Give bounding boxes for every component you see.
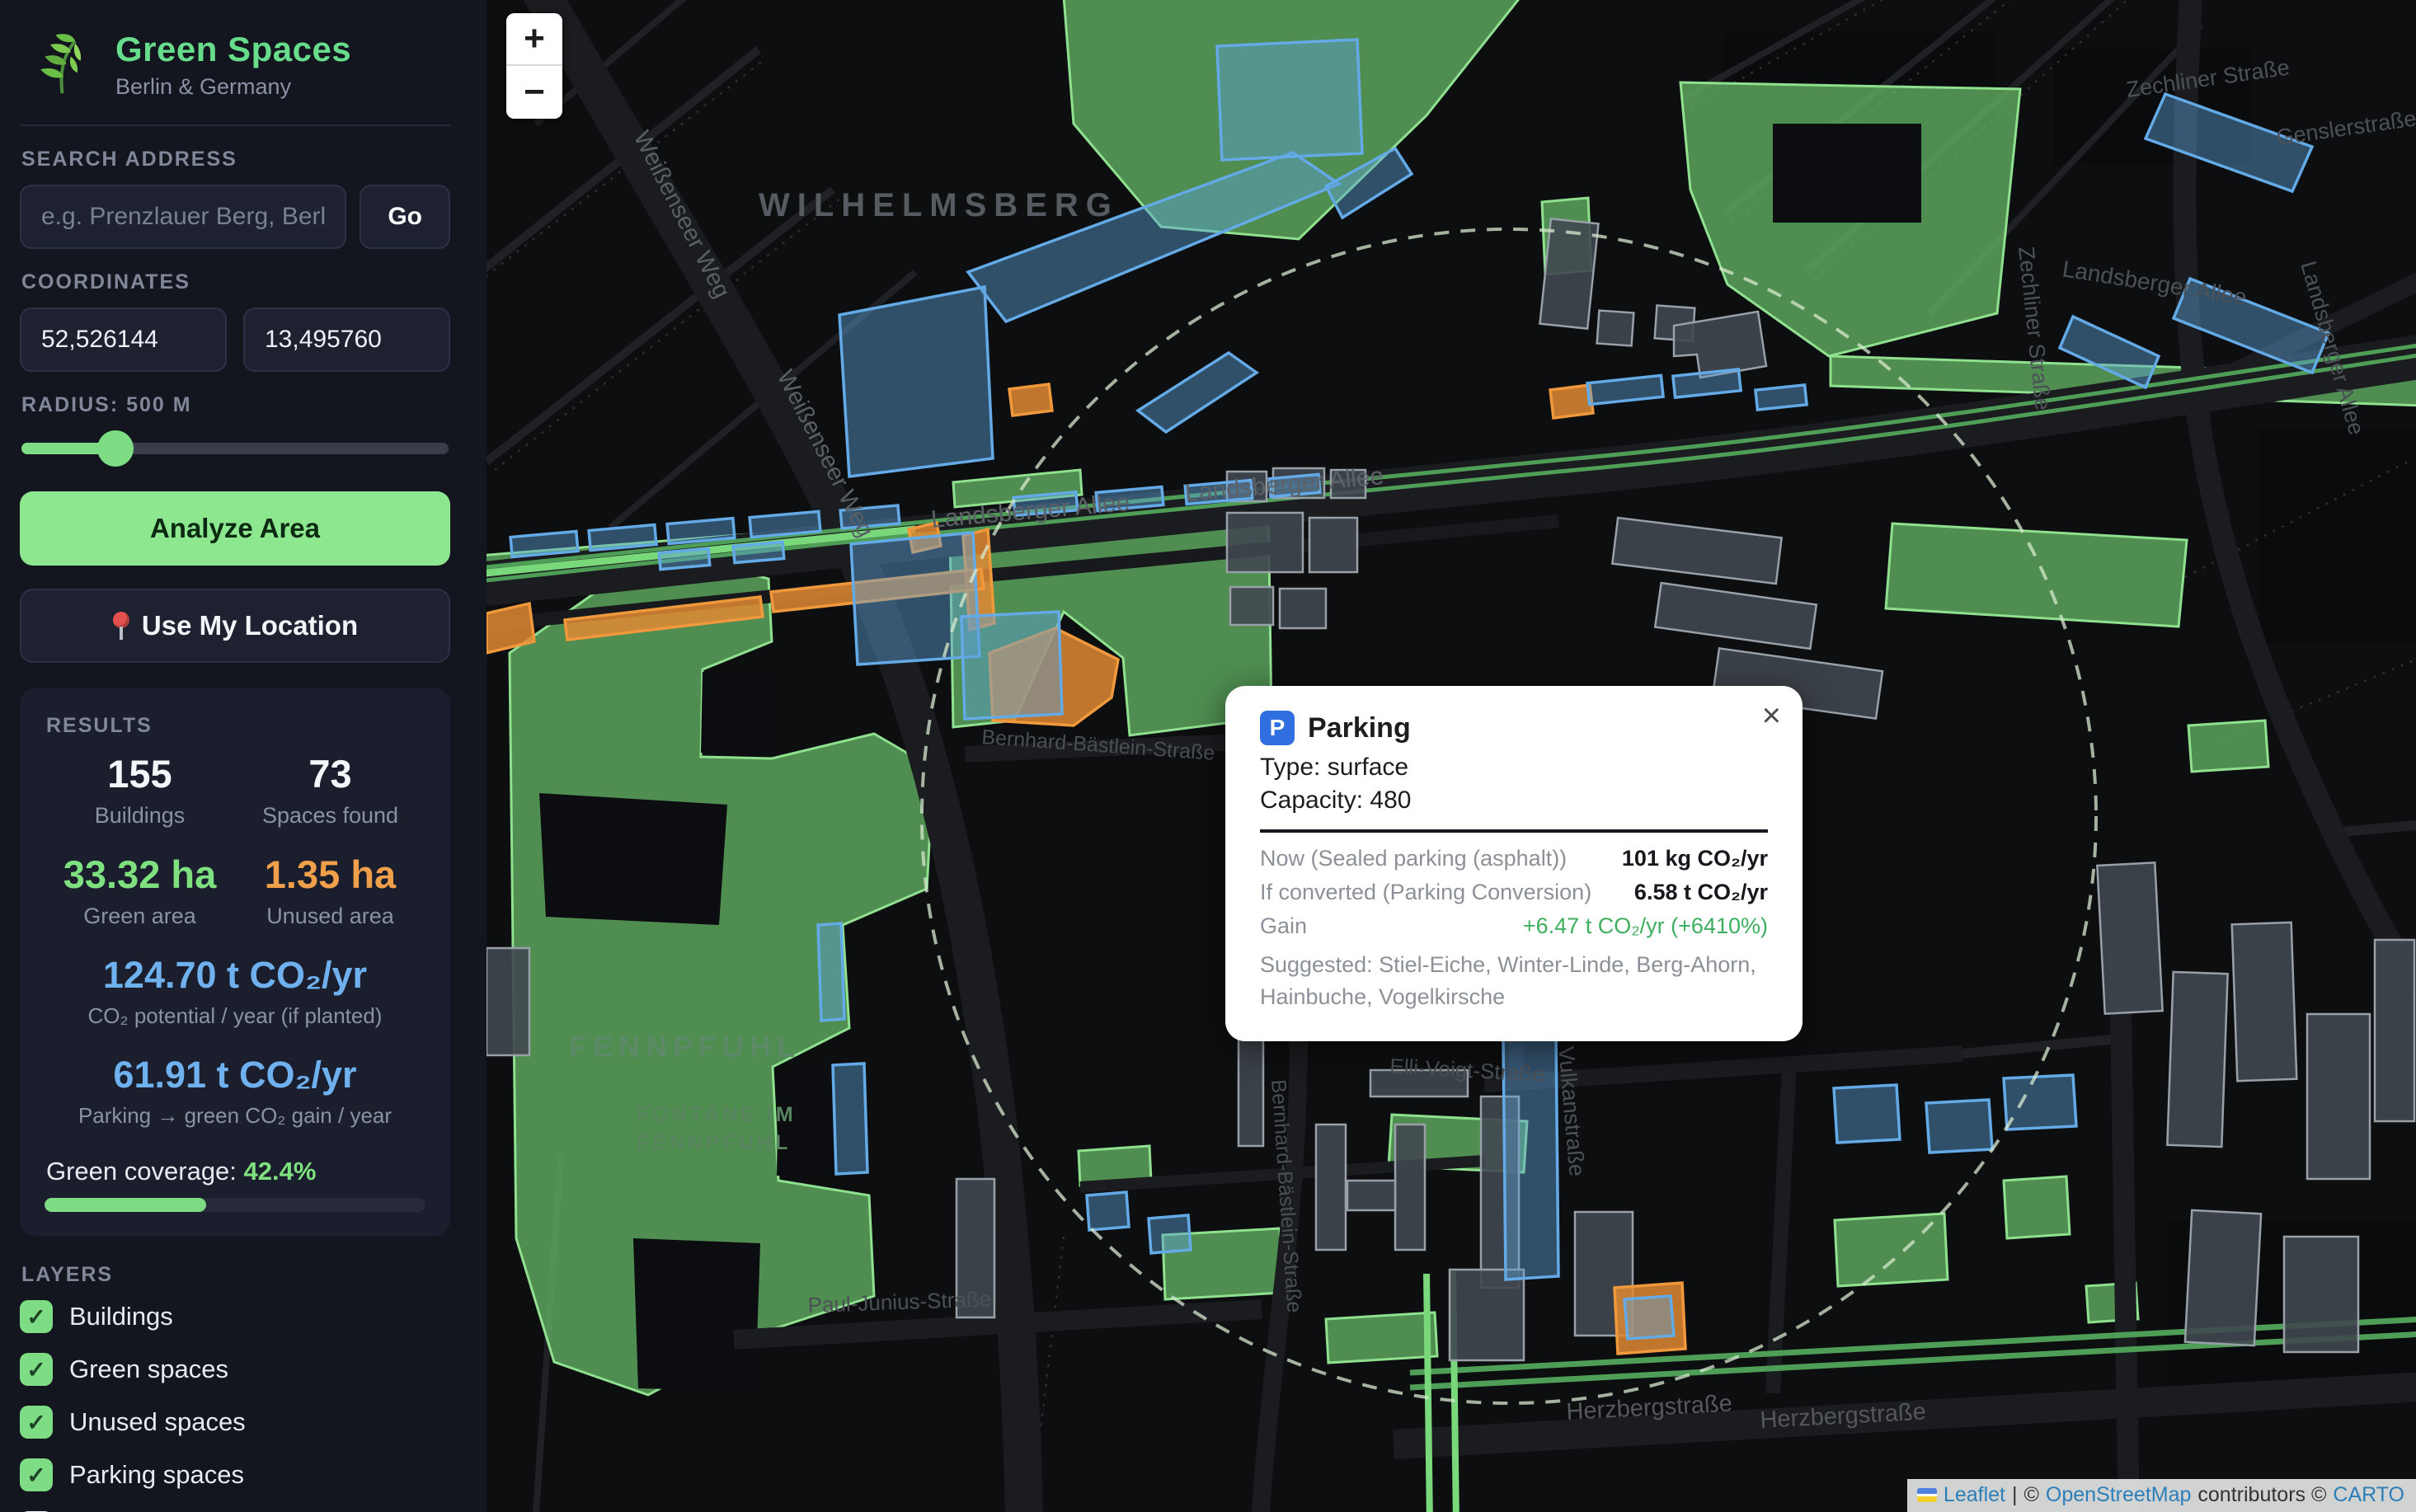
building-polygon[interactable] xyxy=(1230,587,1273,625)
divider xyxy=(20,124,450,126)
leaf-logo-icon xyxy=(30,31,99,100)
building-polygon[interactable] xyxy=(2167,972,2227,1147)
unused-area-label: Unused area xyxy=(235,904,425,929)
checkbox-icon[interactable] xyxy=(20,1458,53,1491)
app-root: Green Spaces Berlin & Germany SEARCH ADD… xyxy=(0,0,2416,1512)
radius-label: RADIUS: 500 M xyxy=(21,393,450,417)
district-label: FENNPFUHL xyxy=(637,1131,791,1154)
coverage-value: 42.4% xyxy=(244,1157,317,1186)
radius-slider[interactable] xyxy=(21,430,449,467)
sidebar: Green Spaces Berlin & Germany SEARCH ADD… xyxy=(0,0,486,1512)
building-polygon[interactable] xyxy=(1347,1181,1395,1210)
building-polygon[interactable] xyxy=(486,948,529,1055)
parking-space-polygon[interactable] xyxy=(818,923,844,1021)
building-polygon[interactable] xyxy=(2185,1210,2261,1345)
parking-space-polygon[interactable] xyxy=(1087,1192,1129,1230)
coordinates-section-label: COORDINATES xyxy=(21,270,450,294)
popup-suggested-trees: Suggested: Stiel-Eiche, Winter-Linde, Be… xyxy=(1260,949,1768,1013)
zoom-out-button[interactable]: − xyxy=(506,66,562,119)
stat-buildings: 155 Buildings xyxy=(45,751,235,829)
zoom-control: + − xyxy=(506,13,562,119)
analyze-area-button[interactable]: Analyze Area xyxy=(20,491,450,566)
layers-section-label: LAYERS xyxy=(21,1263,450,1287)
street-label: Weißenseer Weg xyxy=(628,127,736,303)
layer-label: Parking spaces xyxy=(69,1460,244,1490)
parking-icon: P xyxy=(1260,711,1295,745)
green-space-polygon[interactable] xyxy=(2188,721,2268,772)
leaflet-link[interactable]: Leaflet xyxy=(1944,1483,2005,1507)
district-label: FENNPFUHL xyxy=(569,1030,801,1064)
building-polygon[interactable] xyxy=(1597,311,1634,346)
building-polygon[interactable] xyxy=(2232,923,2297,1081)
parking-space-polygon[interactable] xyxy=(1149,1215,1191,1253)
stat-green-area: 33.32 ha Green area xyxy=(45,852,235,929)
app-title: Green Spaces xyxy=(115,30,351,69)
building-polygon[interactable] xyxy=(2284,1237,2358,1352)
coverage-bar-fill xyxy=(45,1198,206,1212)
search-section-label: SEARCH ADDRESS xyxy=(21,148,450,171)
coverage-label: Green coverage: xyxy=(46,1157,237,1186)
checkbox-icon[interactable] xyxy=(20,1300,53,1333)
layer-label: Buildings xyxy=(69,1302,173,1331)
map-canvas[interactable]: WILHELMSBERGFENNPFUHLFONTANE IMFENNPFUHL… xyxy=(486,0,2416,1512)
slider-thumb[interactable] xyxy=(97,430,134,467)
buildings-label: Buildings xyxy=(45,803,235,829)
building-polygon[interactable] xyxy=(1309,518,1357,572)
parking-space-polygon[interactable] xyxy=(2004,1075,2076,1129)
green-area-label: Green area xyxy=(45,904,235,929)
leaflet-flag-icon xyxy=(1917,1488,1937,1502)
street-label: Genslerstraße xyxy=(2275,106,2416,150)
results-label: RESULTS xyxy=(46,714,425,738)
popup-row-now: Now (Sealed parking (asphalt)) 101 kg CO… xyxy=(1260,846,1768,871)
building-polygon[interactable] xyxy=(1612,518,1781,584)
checkbox-icon[interactable] xyxy=(20,1406,53,1439)
longitude-input[interactable] xyxy=(243,308,450,372)
parking-space-polygon[interactable] xyxy=(851,533,980,664)
parking-space-polygon[interactable] xyxy=(1217,40,1362,160)
close-icon[interactable]: × xyxy=(1762,699,1781,732)
street-label: Vulkanstraße xyxy=(1553,1045,1590,1177)
map-attribution: Leaflet | © OpenStreetMap contributors ©… xyxy=(1907,1479,2416,1512)
stat-unused-area: 1.35 ha Unused area xyxy=(235,852,425,929)
green-area-value: 33.32 ha xyxy=(45,852,235,897)
results-card: RESULTS 155 Buildings 73 Spaces found 33… xyxy=(20,688,450,1237)
street-label: Landsberger Allee xyxy=(2061,256,2249,310)
co2-potential-caption: CO₂ potential / year (if planted) xyxy=(45,1003,425,1029)
unused-space-polygon[interactable] xyxy=(1009,384,1052,416)
popup-title: Parking xyxy=(1308,712,1411,744)
stats-grid: 155 Buildings 73 Spaces found 33.32 ha G… xyxy=(45,751,425,929)
search-row: Go xyxy=(20,185,450,249)
use-my-location-button[interactable]: Use My Location xyxy=(20,589,450,663)
parking-space-polygon[interactable] xyxy=(833,1064,867,1174)
building-polygon[interactable] xyxy=(1316,1125,1346,1250)
layer-toggle-buildings[interactable]: Buildings xyxy=(20,1300,450,1333)
parking-popup: × P Parking Type: surface Capacity: 480 … xyxy=(1225,686,1803,1041)
search-input[interactable] xyxy=(20,185,346,249)
co2-potential-value: 124.70 t CO₂/yr xyxy=(45,954,425,997)
building-polygon[interactable] xyxy=(2097,862,2162,1013)
layer-label: Unused spaces xyxy=(69,1407,246,1437)
layer-toggle-unused-spaces[interactable]: Unused spaces xyxy=(20,1406,450,1439)
co2-potential-block: 124.70 t CO₂/yr CO₂ potential / year (if… xyxy=(45,954,425,1029)
popup-type-line: Type: surface xyxy=(1260,754,1768,782)
layer-label: Green spaces xyxy=(69,1355,228,1384)
coordinates-row xyxy=(20,308,450,372)
district-label: WILHELMSBERG xyxy=(759,187,1119,223)
parking-space-polygon[interactable] xyxy=(1624,1296,1674,1339)
building-polygon[interactable] xyxy=(1655,583,1817,649)
unused-area-value: 1.35 ha xyxy=(235,852,425,897)
popup-divider xyxy=(1260,829,1768,833)
parking-gain-caption: Parking → green CO₂ gain / year xyxy=(45,1103,425,1129)
openstreetmap-link[interactable]: OpenStreetMap xyxy=(2046,1483,2192,1507)
buildings-value: 155 xyxy=(45,751,235,796)
latitude-input[interactable] xyxy=(20,308,227,372)
popup-capacity-line: Capacity: 480 xyxy=(1260,787,1768,815)
building-polygon[interactable] xyxy=(1227,513,1303,572)
stat-spaces: 73 Spaces found xyxy=(235,751,425,829)
parking-space-polygon[interactable] xyxy=(1926,1100,1992,1153)
parking-space-polygon[interactable] xyxy=(1834,1085,1900,1143)
spaces-label: Spaces found xyxy=(235,803,425,829)
building-polygon[interactable] xyxy=(1539,218,1598,328)
parking-space-polygon[interactable] xyxy=(1138,353,1257,432)
use-my-location-label: Use My Location xyxy=(142,610,358,641)
popup-row-converted: If converted (Parking Conversion) 6.58 t… xyxy=(1260,880,1768,905)
parking-gain-block: 61.91 t CO₂/yr Parking → green CO₂ gain … xyxy=(45,1054,425,1129)
brand-header: Green Spaces Berlin & Germany xyxy=(20,23,450,121)
coverage-bar xyxy=(45,1198,425,1212)
brand-text: Green Spaces Berlin & Germany xyxy=(115,30,351,100)
layer-toggle-parking-spaces[interactable]: Parking spaces xyxy=(20,1458,450,1491)
building-polygon[interactable] xyxy=(2307,1014,2370,1179)
popup-row-gain: Gain +6.47 t CO₂/yr (+6410%) xyxy=(1260,913,1768,939)
carto-link[interactable]: CARTO xyxy=(2333,1483,2404,1507)
zoom-in-button[interactable]: + xyxy=(506,13,562,66)
parking-gain-value: 61.91 t CO₂/yr xyxy=(45,1054,425,1096)
layer-toggle-green-spaces[interactable]: Green spaces xyxy=(20,1353,450,1386)
app-subtitle: Berlin & Germany xyxy=(115,74,351,100)
building-polygon[interactable] xyxy=(1450,1270,1524,1360)
district-label: FONTANE IM xyxy=(637,1103,797,1126)
green-space-polygon[interactable] xyxy=(1886,524,2187,627)
parking-space-polygon[interactable] xyxy=(961,612,1062,719)
building-polygon[interactable] xyxy=(2375,940,2414,1121)
green-space-polygon[interactable] xyxy=(2004,1176,2070,1238)
parking-space-polygon[interactable] xyxy=(839,287,993,477)
spaces-value: 73 xyxy=(235,751,425,796)
building-polygon[interactable] xyxy=(1280,589,1326,628)
building-polygon[interactable] xyxy=(1239,1031,1263,1146)
green-space-polygon[interactable] xyxy=(1326,1312,1437,1363)
green-coverage-line: Green coverage: 42.4% xyxy=(46,1157,425,1186)
pin-icon xyxy=(112,612,130,640)
checkbox-icon[interactable] xyxy=(20,1353,53,1386)
go-button[interactable]: Go xyxy=(360,185,450,249)
building-polygon[interactable] xyxy=(1395,1125,1425,1250)
